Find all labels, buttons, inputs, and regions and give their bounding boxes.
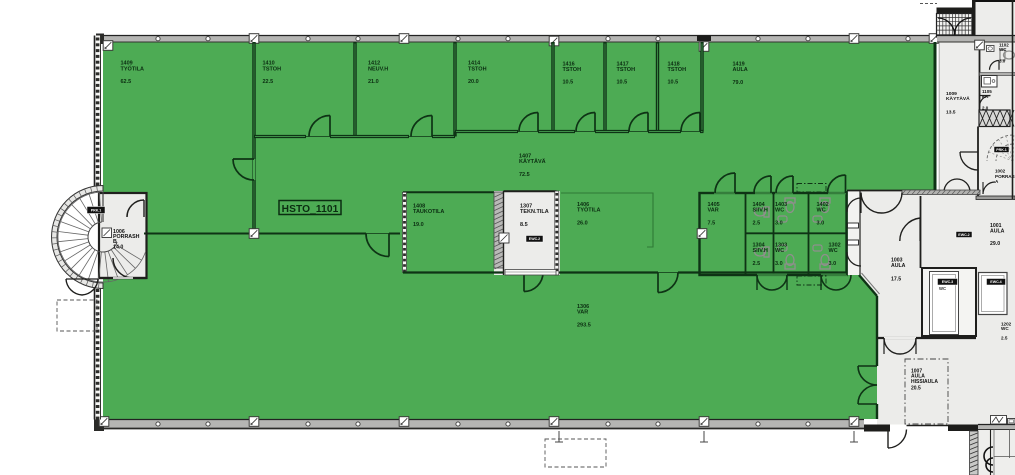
svg-text:PORRASH: PORRASH [113,234,140,240]
svg-text:20.5: 20.5 [911,386,921,392]
svg-text:1009: 1009 [946,91,957,97]
svg-text:HSTO_1101: HSTO_1101 [282,204,339,215]
svg-text:AULA: AULA [733,67,748,73]
svg-text:PRK.1: PRK.1 [91,208,102,212]
svg-text:14.0: 14.0 [113,245,123,251]
svg-text:7.5: 7.5 [708,220,716,226]
svg-text:3.0: 3.0 [775,220,783,226]
svg-text:EWC.3: EWC.3 [942,280,953,284]
svg-text:AULA: AULA [990,229,1005,235]
svg-text:293.5: 293.5 [577,322,591,328]
svg-text:2.5: 2.5 [753,220,761,226]
svg-text:WC: WC [939,286,946,291]
svg-text:TYÖTILA: TYÖTILA [121,65,145,72]
svg-text:TSTOH: TSTOH [668,67,687,73]
svg-text:72.5: 72.5 [519,172,530,178]
svg-text:WC: WC [999,47,1007,52]
svg-text:WC: WC [775,248,784,254]
svg-text:TSTOH: TSTOH [468,66,487,72]
svg-text:EWC.2: EWC.2 [529,237,540,241]
svg-text:KÄYTÄVÄ: KÄYTÄVÄ [519,158,546,165]
svg-text:29.0: 29.0 [990,241,1000,247]
svg-text:VAR: VAR [708,208,719,214]
svg-text:TYÖTILA: TYÖTILA [577,207,601,214]
svg-text:22.5: 22.5 [263,79,274,85]
svg-text:2.5: 2.5 [1001,336,1008,341]
svg-text:EWC.4: EWC.4 [990,280,1001,284]
svg-text:17.5: 17.5 [891,277,901,283]
svg-text:WC: WC [829,248,838,254]
svg-text:EWC.2: EWC.2 [958,233,969,237]
svg-text:3.0: 3.0 [775,261,783,267]
svg-text:TEKN.TILA: TEKN.TILA [520,209,549,215]
svg-text:TSTOH: TSTOH [563,67,582,73]
svg-text:3.0: 3.0 [829,261,837,267]
svg-text:8.5: 8.5 [520,222,528,228]
svg-text:19.0: 19.0 [413,222,424,228]
svg-text:21.0: 21.0 [368,79,379,85]
svg-text:13.5: 13.5 [946,110,956,116]
svg-text:20.0: 20.0 [468,79,479,85]
svg-text:TSTOH: TSTOH [617,67,636,73]
svg-text:VAR: VAR [577,310,588,316]
svg-text:79.0: 79.0 [733,80,744,86]
svg-text:TSTOH: TSTOH [263,66,282,72]
svg-text:10.5: 10.5 [563,80,574,86]
svg-text:26.0: 26.0 [577,220,588,226]
svg-text:3.0: 3.0 [817,220,825,226]
svg-text:TAUKOTILA: TAUKOTILA [413,209,444,215]
svg-text:KÄYTÄVÄ: KÄYTÄVÄ [946,95,970,102]
svg-text:2.5: 2.5 [753,261,761,267]
svg-text:NEUV.H: NEUV.H [368,66,388,72]
svg-text:10.5: 10.5 [668,80,679,86]
svg-text:PRK.1: PRK.1 [996,148,1007,152]
svg-text:WC: WC [1001,326,1009,331]
svg-text:SIIV.H: SIIV.H [753,248,768,254]
svg-text:10.5: 10.5 [617,80,628,86]
svg-text:WC: WC [817,208,826,214]
svg-text:SIIV.H: SIIV.H [753,208,768,214]
svg-text:WC: WC [775,208,784,214]
svg-text:62.5: 62.5 [121,79,132,85]
svg-text:3.0: 3.0 [999,59,1006,64]
svg-text:AULA: AULA [891,263,906,269]
svg-text:HISSIAULA: HISSIAULA [911,379,938,385]
